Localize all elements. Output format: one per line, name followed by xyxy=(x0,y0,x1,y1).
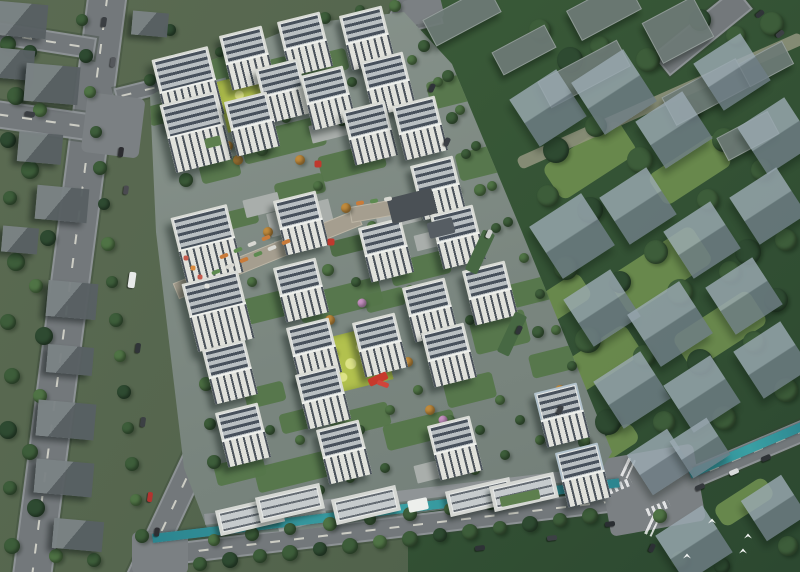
bird xyxy=(708,519,716,524)
aerial-rendering xyxy=(0,0,800,572)
bird xyxy=(683,554,691,559)
bird xyxy=(739,549,747,554)
layer-birds xyxy=(0,0,800,572)
bird xyxy=(744,534,752,539)
